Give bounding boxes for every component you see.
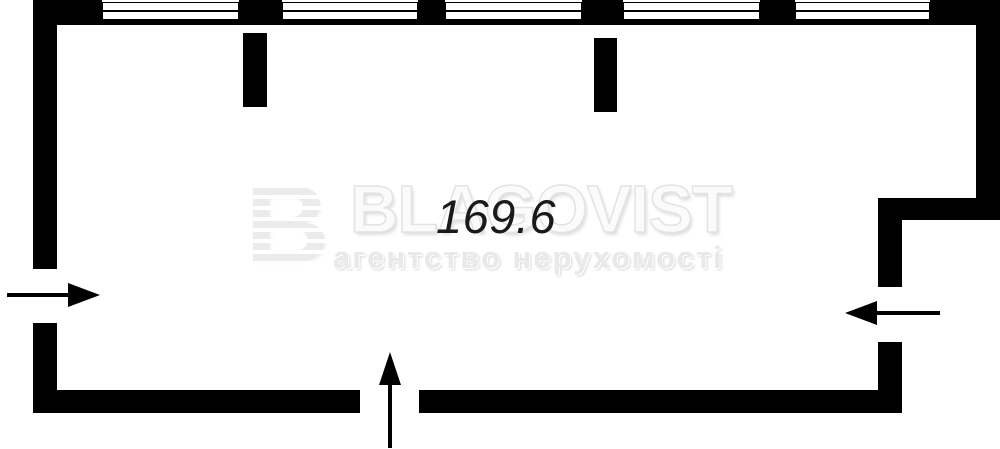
window-4-symbol	[623, 2, 760, 20]
top-wall-pier-1	[33, 0, 102, 25]
window-pane-divider	[445, 10, 582, 12]
window-pane-divider	[102, 10, 239, 12]
entrance-arrow-right	[845, 301, 940, 325]
arrow-head	[68, 283, 100, 307]
window-1-symbol	[102, 2, 239, 20]
top-wall-pier-3	[418, 0, 445, 25]
left-wall-upper	[33, 0, 57, 269]
arrow-head	[845, 301, 877, 325]
interior-wall-stub-2	[594, 38, 617, 112]
window-pane-divider	[623, 10, 760, 12]
entrance-arrow-left	[7, 283, 100, 307]
arrow-shaft	[7, 293, 70, 297]
floor-plan: B BLAGOVIST агентство нерухомості 169.6	[0, 0, 1000, 449]
arrow-shaft	[875, 311, 940, 315]
interior-wall-stub-1	[243, 33, 267, 107]
window-3-symbol	[445, 2, 582, 20]
right-inner-wall-upper	[878, 198, 902, 287]
window-2-symbol	[282, 2, 418, 20]
arrow-shaft	[388, 382, 392, 448]
top-wall-pier-4	[582, 0, 623, 25]
area-label: 169.6	[436, 193, 556, 240]
window-pane-divider	[795, 10, 930, 12]
bottom-wall-right	[419, 390, 902, 413]
top-wall-pier-5	[760, 0, 795, 25]
bottom-wall-left	[33, 390, 360, 413]
window-pane-divider	[282, 10, 418, 12]
window-5-symbol	[795, 2, 930, 20]
arrow-head	[379, 352, 401, 385]
top-wall-sill-band	[33, 20, 1000, 25]
right-wall-upper	[976, 0, 1000, 220]
entrance-arrow-bottom	[379, 352, 401, 448]
top-wall-pier-2	[239, 0, 282, 25]
